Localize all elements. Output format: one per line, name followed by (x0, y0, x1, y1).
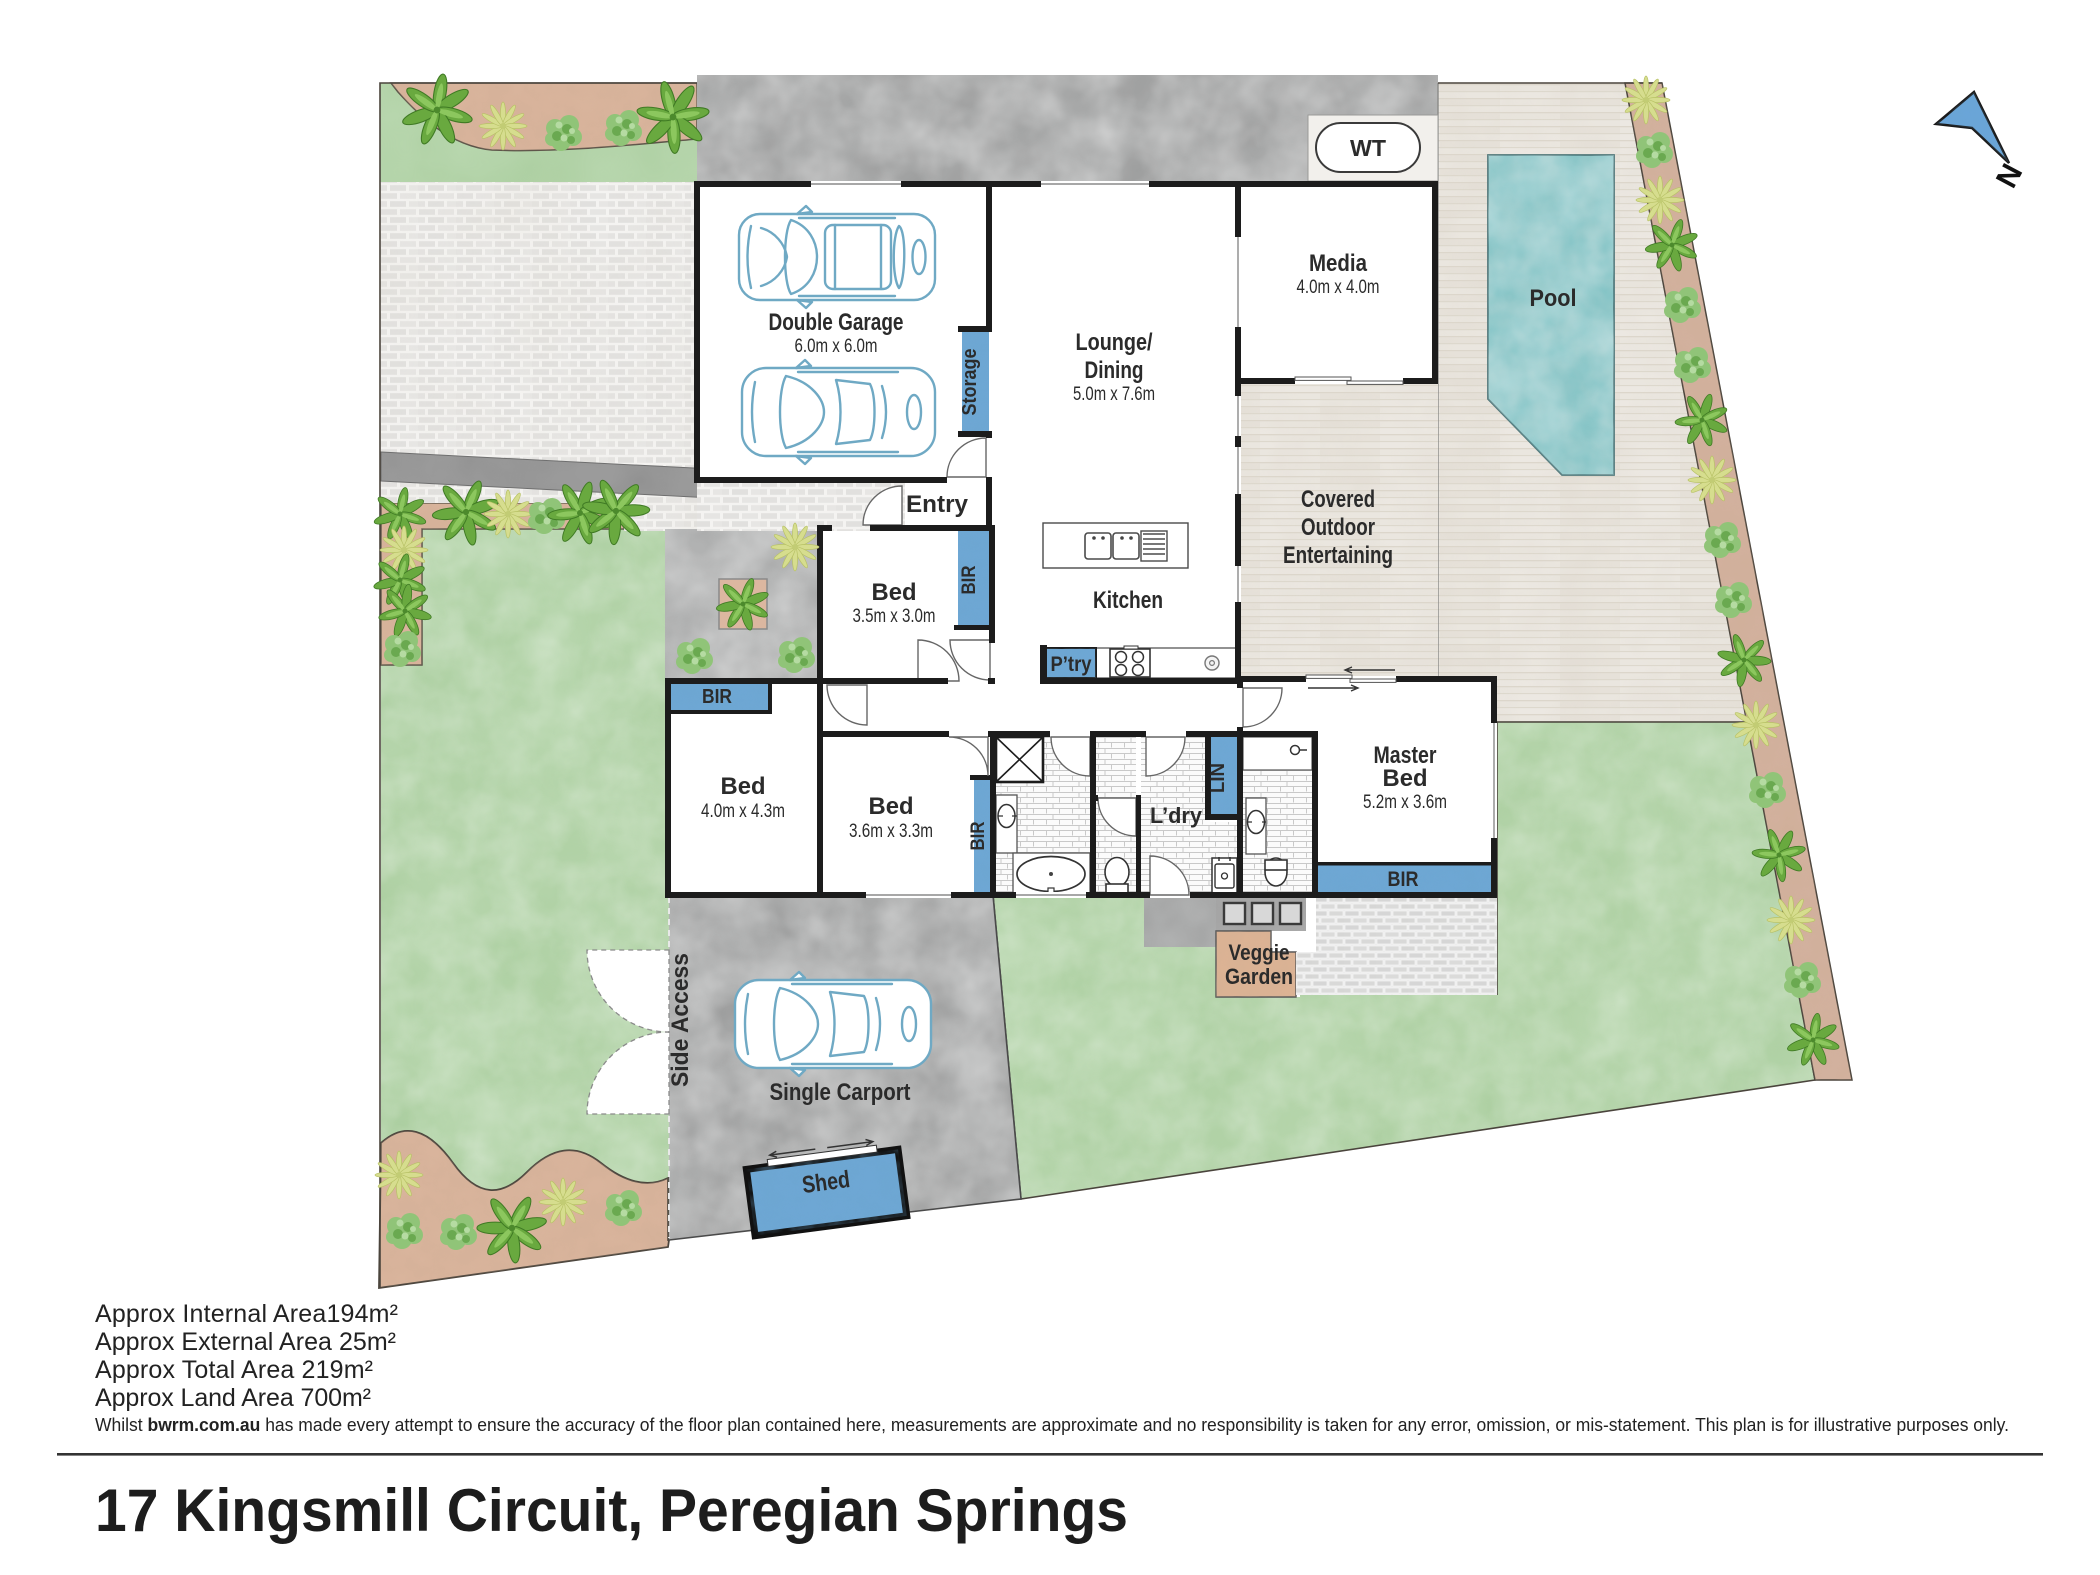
svg-text:3.6m x 3.3m: 3.6m x 3.3m (849, 821, 933, 842)
svg-text:Veggie: Veggie (1229, 940, 1290, 965)
svg-text:BIR: BIR (968, 821, 989, 850)
svg-text:Dining: Dining (1085, 357, 1144, 384)
svg-text:5.2m x 3.6m: 5.2m x 3.6m (1363, 792, 1447, 813)
svg-text:Media: Media (1309, 250, 1368, 277)
svg-text:BIR: BIR (959, 565, 980, 594)
svg-text:Whilst bwrm.com.au has made ev: Whilst bwrm.com.au has made every attemp… (95, 1414, 2009, 1435)
svg-text:3.5m x 3.0m: 3.5m x 3.0m (853, 606, 936, 627)
svg-text:BIR: BIR (702, 686, 732, 708)
svg-text:Entry: Entry (906, 491, 969, 518)
svg-text:Bed: Bed (872, 579, 917, 606)
svg-text:P’try: P’try (1051, 653, 1092, 676)
svg-text:5.0m x 7.6m: 5.0m x 7.6m (1073, 384, 1155, 405)
svg-text:Approx Internal Area194m²: Approx Internal Area194m² (95, 1300, 398, 1328)
svg-text:Garden: Garden (1225, 964, 1293, 989)
svg-text:Outdoor: Outdoor (1301, 514, 1375, 541)
svg-text:4.0m x 4.3m: 4.0m x 4.3m (701, 801, 785, 822)
svg-text:6.0m x 6.0m: 6.0m x 6.0m (795, 336, 878, 357)
svg-text:Entertaining: Entertaining (1283, 542, 1393, 569)
svg-text:Bed: Bed (869, 793, 914, 820)
svg-text:Covered: Covered (1301, 486, 1375, 513)
svg-text:Double Garage: Double Garage (769, 309, 904, 336)
svg-text:Approx Land Area 700m²: Approx Land Area 700m² (95, 1384, 371, 1412)
svg-text:17 Kingsmill Circuit, Peregian: 17 Kingsmill Circuit, Peregian Springs (95, 1477, 1128, 1544)
svg-text:Kitchen: Kitchen (1093, 587, 1163, 614)
svg-text:LIN: LIN (1208, 763, 1229, 793)
svg-text:Side Access: Side Access (667, 953, 694, 1087)
svg-text:Pool: Pool (1530, 285, 1577, 312)
svg-text:4.0m x 4.0m: 4.0m x 4.0m (1297, 277, 1380, 298)
svg-text:Lounge/: Lounge/ (1076, 329, 1153, 356)
svg-text:Approx Total Area 219m²: Approx Total Area 219m² (95, 1356, 373, 1384)
svg-text:WT: WT (1350, 135, 1386, 161)
svg-text:BIR: BIR (1388, 868, 1419, 891)
svg-text:Storage: Storage (959, 349, 981, 416)
svg-text:Single Carport: Single Carport (770, 1079, 911, 1106)
svg-text:Bed: Bed (721, 773, 766, 800)
svg-text:Approx External Area 25m²: Approx External Area 25m² (95, 1328, 396, 1356)
svg-text:L’dry: L’dry (1150, 803, 1203, 828)
svg-text:Bed: Bed (1383, 765, 1428, 792)
